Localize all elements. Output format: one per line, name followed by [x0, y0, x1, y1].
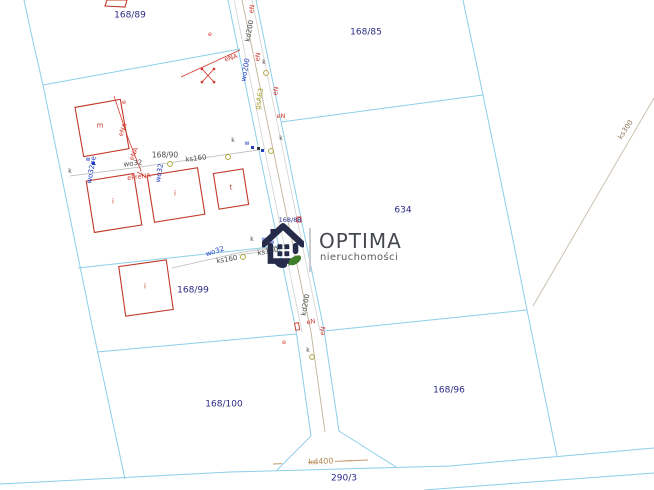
marker-k-2: k — [231, 138, 234, 144]
parcel-label-168-99: 168/99 — [177, 287, 209, 296]
sewer-ks300-line — [533, 98, 654, 306]
parcel-label-168-85: 168/85 — [350, 29, 382, 38]
marker-k-3: k — [279, 136, 282, 142]
power-label-eN-5: eN — [306, 318, 316, 326]
marker-k-5: k — [250, 237, 253, 243]
marker-k-4: k — [306, 348, 309, 354]
power-label-eN-1: eN — [248, 4, 256, 14]
marker-k-6: k — [68, 169, 71, 175]
logo-title: OPTIMA — [319, 229, 402, 253]
parcel-label-168-90: 168/90 — [152, 151, 178, 159]
parcel-label-168-89: 168/89 — [114, 12, 146, 21]
marker-w-1: w — [245, 141, 250, 147]
logo-divider — [309, 228, 311, 272]
building-label-m: m — [97, 123, 104, 130]
parcel-label-634: 634 — [394, 207, 411, 216]
power-pole-icon — [201, 68, 215, 83]
utility-label-kd400: kd400 — [308, 457, 333, 466]
building-label-i-2: i — [174, 191, 176, 198]
logo-subtitle: nieruchomości — [320, 252, 398, 263]
building-top-sliver — [105, 0, 127, 7]
parcel-label-168-96: 168/96 — [433, 387, 465, 396]
window-panes — [277, 244, 289, 256]
power-label-e-3: e — [282, 339, 286, 346]
marker-k-1: k — [262, 60, 265, 66]
power-label-eN-3: eN — [272, 86, 280, 96]
power-label-eN-2: eN — [254, 52, 262, 62]
power-label-e-2: e — [208, 31, 212, 38]
parcel-label-168-100: 168/100 — [205, 401, 242, 410]
road-inner-lines — [234, 0, 320, 332]
parcel-label-290-3: 290/3 — [331, 475, 357, 484]
power-label-eN-4: eN — [277, 113, 286, 120]
optima-house-icon — [262, 222, 304, 268]
cadastral-map: 168/89 168/85 168/88 634 168/90 168/99 1… — [0, 0, 654, 490]
point-icon — [257, 147, 260, 150]
building-label-i-1: i — [112, 199, 114, 206]
red-marker-rect — [295, 323, 300, 331]
building-label-t: t — [230, 185, 233, 192]
power-label-e-1: e — [122, 99, 126, 106]
marker-w-4: w — [86, 157, 91, 163]
building-label-i-3: i — [144, 284, 146, 291]
power-label-eN-6: eN — [319, 326, 327, 336]
